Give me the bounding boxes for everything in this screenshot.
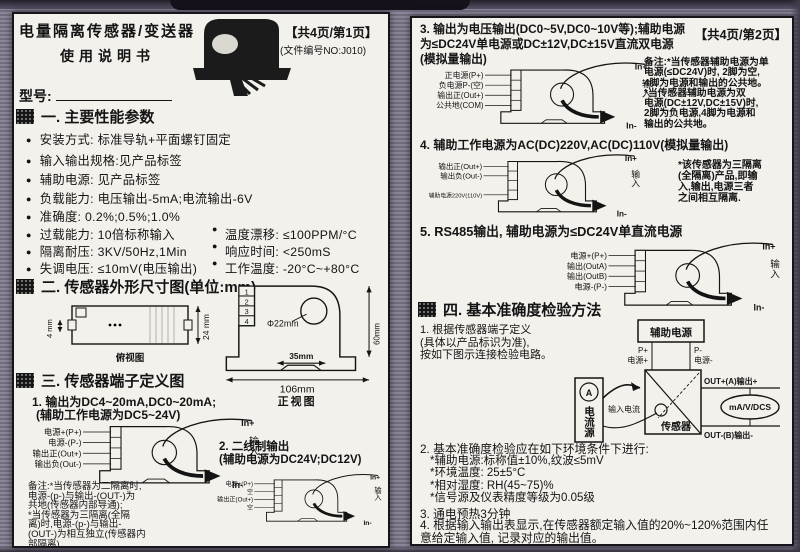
param-row: ●准确度: 0.2%;0.5%;1.0% xyxy=(26,207,390,225)
diagram-3-note: 备注:*当传感器辅助电源为单 电源(≤DC24V)时, 2脚为空, 4脚为电源和… xyxy=(644,58,790,130)
doc-title: 电量隔离传感器/变送器 xyxy=(19,20,195,41)
in-plus-label: In+ xyxy=(762,242,775,252)
model-label: 型号: xyxy=(19,86,172,106)
dim-35mm: 35mm xyxy=(289,351,313,361)
section-3-heading-text: 三. 传感器端子定义图 xyxy=(41,370,184,391)
bullet-icon: ● xyxy=(212,258,218,268)
doc-subtitle: 使用说明书 xyxy=(60,46,155,66)
param-text: 工作温度: -20°C~+80°C xyxy=(225,259,360,277)
section-2-heading: 二. 传感器外形尺寸图(单位:mm) xyxy=(16,276,256,297)
terminal-label: 输出正(Out+) xyxy=(438,161,482,171)
param-text: 响应时间: <250mS xyxy=(225,242,331,260)
ammeter-label: A xyxy=(586,388,593,398)
input-label: 输入 xyxy=(630,168,640,187)
section-3-heading: 三. 传感器端子定义图 xyxy=(16,370,184,391)
front-view-drawing: 1 2 3 4 Φ22mm 35mm 106mm 60mm 正视图 xyxy=(223,284,388,409)
terminal-label: 辅助电源220V(110V) xyxy=(429,192,482,200)
bullet-icon: ● xyxy=(26,247,32,257)
page-marker: 【共4页/第1页】 xyxy=(285,22,377,41)
param-text: 过载能力: 10倍标称输入 xyxy=(40,225,175,243)
param-text: 准确度: 0.2%;0.5%;1.0% xyxy=(40,207,180,225)
bullet-icon: ● xyxy=(212,241,218,251)
terminal-label: 电源-(P-) xyxy=(575,282,608,292)
dim-4mm: 4 mm xyxy=(45,319,54,338)
terminal-label: 空 xyxy=(247,488,253,496)
bullet-icon: ● xyxy=(212,224,218,234)
in-plus-label: In+ xyxy=(625,154,637,163)
input-label: 输入 xyxy=(768,259,780,279)
dim-106mm: 106mm xyxy=(280,384,315,395)
section-title-4: 4. 辅助工作电源为AC(DC)220V,AC(DC)110V(模拟量输出) xyxy=(420,136,728,153)
terminal-label: 负电源P-(空) xyxy=(439,80,484,90)
out-plus-label: OUT+(A)输出+ xyxy=(704,376,758,386)
pin-number: 1 xyxy=(245,287,249,296)
in-minus-label: In- xyxy=(617,210,627,219)
in-minus-label: In- xyxy=(626,120,637,130)
terminal-diagram-2: 电源+(P+) 空 输出正(Out+) 空 In+ 输入 In- xyxy=(204,472,388,528)
section-4-heading-text: 四. 基本准确度检验方法 xyxy=(443,299,601,320)
dim-diameter: Φ22mm xyxy=(267,319,299,329)
param-row: ●辅助电源: 见产品标签 xyxy=(26,170,390,188)
model-label-text: 型号: xyxy=(19,88,52,104)
diagram-2-subtitle: (辅助电源为DC24V;DC12V) xyxy=(219,451,362,467)
doc-number: (文件编号NO:J010) xyxy=(280,42,366,57)
page-2: 3. 输出为电压输出(DC0~5V,DC0~10V等);辅助电源 为≤DC24V… xyxy=(410,16,794,546)
section-title-5: 5. RS485输出, 辅助电源为≤DC24V单直流电源 xyxy=(420,221,682,240)
page-1: 电量隔离传感器/变送器 使用说明书 【共4页/第1页】 (文件编号NO:J010… xyxy=(12,12,390,548)
power-minus-label: 电源- xyxy=(694,355,713,365)
terminal-label: 空 xyxy=(247,503,253,511)
input-current-label: 输入电流 xyxy=(608,404,640,414)
check-item-4: 4. 根据输入输出表显示,在传感器额定输入值的20%~120%范围内任 意给定输… xyxy=(420,519,768,545)
in-plus-label: In+ xyxy=(370,474,380,481)
in-minus-label: In- xyxy=(754,302,765,312)
top-view-caption: 俯视图 xyxy=(116,352,145,364)
dim-60mm: 60mm xyxy=(372,323,381,345)
terminal-label: 输出正(Out+) xyxy=(437,90,484,100)
bullet-icon: ● xyxy=(26,264,32,274)
terminal-label: 电源-(P-) xyxy=(48,438,82,448)
page-marker: 【共4页/第2页】 xyxy=(695,24,787,43)
terminal-label: 输出(OutB) xyxy=(567,271,607,281)
param-text: 失调电压: ≤10mV(电压输出) xyxy=(40,259,197,277)
p-plus-label: P+ xyxy=(638,346,648,355)
pin-number: 3 xyxy=(245,307,249,316)
out-minus-label: OUT-(B)输出- xyxy=(704,430,753,440)
dim-24mm: 24 mm xyxy=(201,314,211,340)
param-text: 负载能力: 电压输出-5mA;电流输出-6V xyxy=(40,189,253,207)
in-minus-label: In- xyxy=(363,520,371,527)
section-marker-icon xyxy=(418,302,436,317)
param-text: 辅助电源: 见产品标签 xyxy=(40,170,161,188)
param-row: ●负载能力: 电压输出-5mA;电流输出-6V xyxy=(26,189,390,207)
section-marker-icon xyxy=(16,279,34,294)
top-view-drawing: 4 mm 24 mm 俯视图 xyxy=(42,300,212,366)
terminal-label: 输出正(Out+) xyxy=(217,496,253,504)
terminal-label: 输出负(Out-) xyxy=(440,171,482,181)
in-plus-label: In+ xyxy=(241,418,254,428)
sensor-box-label: 传感器 xyxy=(660,420,692,433)
bullet-icon: ● xyxy=(26,194,32,204)
model-blank-line xyxy=(56,86,172,101)
p-minus-label: P- xyxy=(694,346,702,355)
param-text: 隔离耐压: 3KV/50Hz,1Min xyxy=(40,242,187,260)
pin-number: 4 xyxy=(245,317,249,326)
param-row: ●过载能力: 10倍标称输入●温度漂移: ≤100PPM/°C xyxy=(26,225,390,243)
terminal-diagram-3: 正电源(P+) 负电源P-(空) 输出正(Out+) 公共地(COM) In+ … xyxy=(420,60,658,132)
section-marker-icon xyxy=(16,109,34,124)
terminal-label: 电源+(P+) xyxy=(44,427,82,437)
param-text: 温度漂移: ≤100PPM/°C xyxy=(225,225,357,243)
diagram-4-note: *该传感器为三隔离 (全隔离)产品,即输 入,输出,电源三者 之间相互隔离. xyxy=(678,160,790,204)
diagram-1-note: 备注:*当传感器为二隔离时, 电源-(p-)与输出-(OUT-)为 共地(传感器… xyxy=(28,482,208,548)
terminal-label: 输出负(Out-) xyxy=(35,459,82,469)
section-1-heading-text: 一. 主要性能参数 xyxy=(41,106,154,127)
terminal-diagram-4: 输出正(Out+) 输出负(Out-) 辅助电源220V(110V) In+ 输… xyxy=(422,152,647,220)
section-4-heading: 四. 基本准确度检验方法 xyxy=(418,299,601,320)
bullet-icon: ● xyxy=(26,175,32,185)
bullet-icon: ● xyxy=(26,135,32,145)
bullet-icon: ● xyxy=(26,230,32,240)
bullet-icon: ● xyxy=(26,156,32,166)
meter-label: mA/V/DCS xyxy=(729,402,771,412)
terminal-label: 电源+(P+) xyxy=(225,480,253,488)
section-marker-icon xyxy=(16,373,34,388)
section-1-heading: 一. 主要性能参数 xyxy=(16,106,154,127)
param-row: ●失调电压: ≤10mV(电压输出)●工作温度: -20°C~+80°C xyxy=(26,259,390,277)
terminal-label: 输出(OutA) xyxy=(567,261,607,271)
front-view-caption: 正视图 xyxy=(278,394,317,408)
bullet-icon: ● xyxy=(26,212,32,222)
param-text: 输入输出规格:见产品标签 xyxy=(40,151,182,169)
param-row: ●安装方式: 标准导轨+平面螺钉固定 xyxy=(26,130,390,148)
check-item-2-conditions: *辅助电源:标称值±10%,纹波≤5mV *环境温度: 25±5°C *相对湿度… xyxy=(430,455,604,505)
terminal-label: 公共地(COM) xyxy=(436,100,484,110)
test-circuit-diagram: 辅助电源 P+ 电源+ P- 电源- A 电流源 输入电流 传感器 OUT+(A… xyxy=(530,318,786,444)
param-row: ●隔离耐压: 3KV/50Hz,1Min●响应时间: <250mS xyxy=(26,242,390,260)
param-row: ●输入输出规格:见产品标签 xyxy=(26,151,390,169)
terminal-label: 正电源(P+) xyxy=(445,70,484,80)
pin-number: 2 xyxy=(245,297,249,306)
terminal-label: 电源+(P+) xyxy=(570,251,607,261)
scan-blotch xyxy=(170,0,470,10)
terminal-label: 输出正(Out+) xyxy=(33,448,82,458)
power-plus-label: 电源+ xyxy=(627,355,648,365)
aux-power-box-label: 辅助电源 xyxy=(650,326,692,339)
current-source-label: 电流源 xyxy=(583,405,595,438)
input-label: 输入 xyxy=(374,486,383,501)
param-text: 安装方式: 标准导轨+平面螺钉固定 xyxy=(40,130,231,148)
